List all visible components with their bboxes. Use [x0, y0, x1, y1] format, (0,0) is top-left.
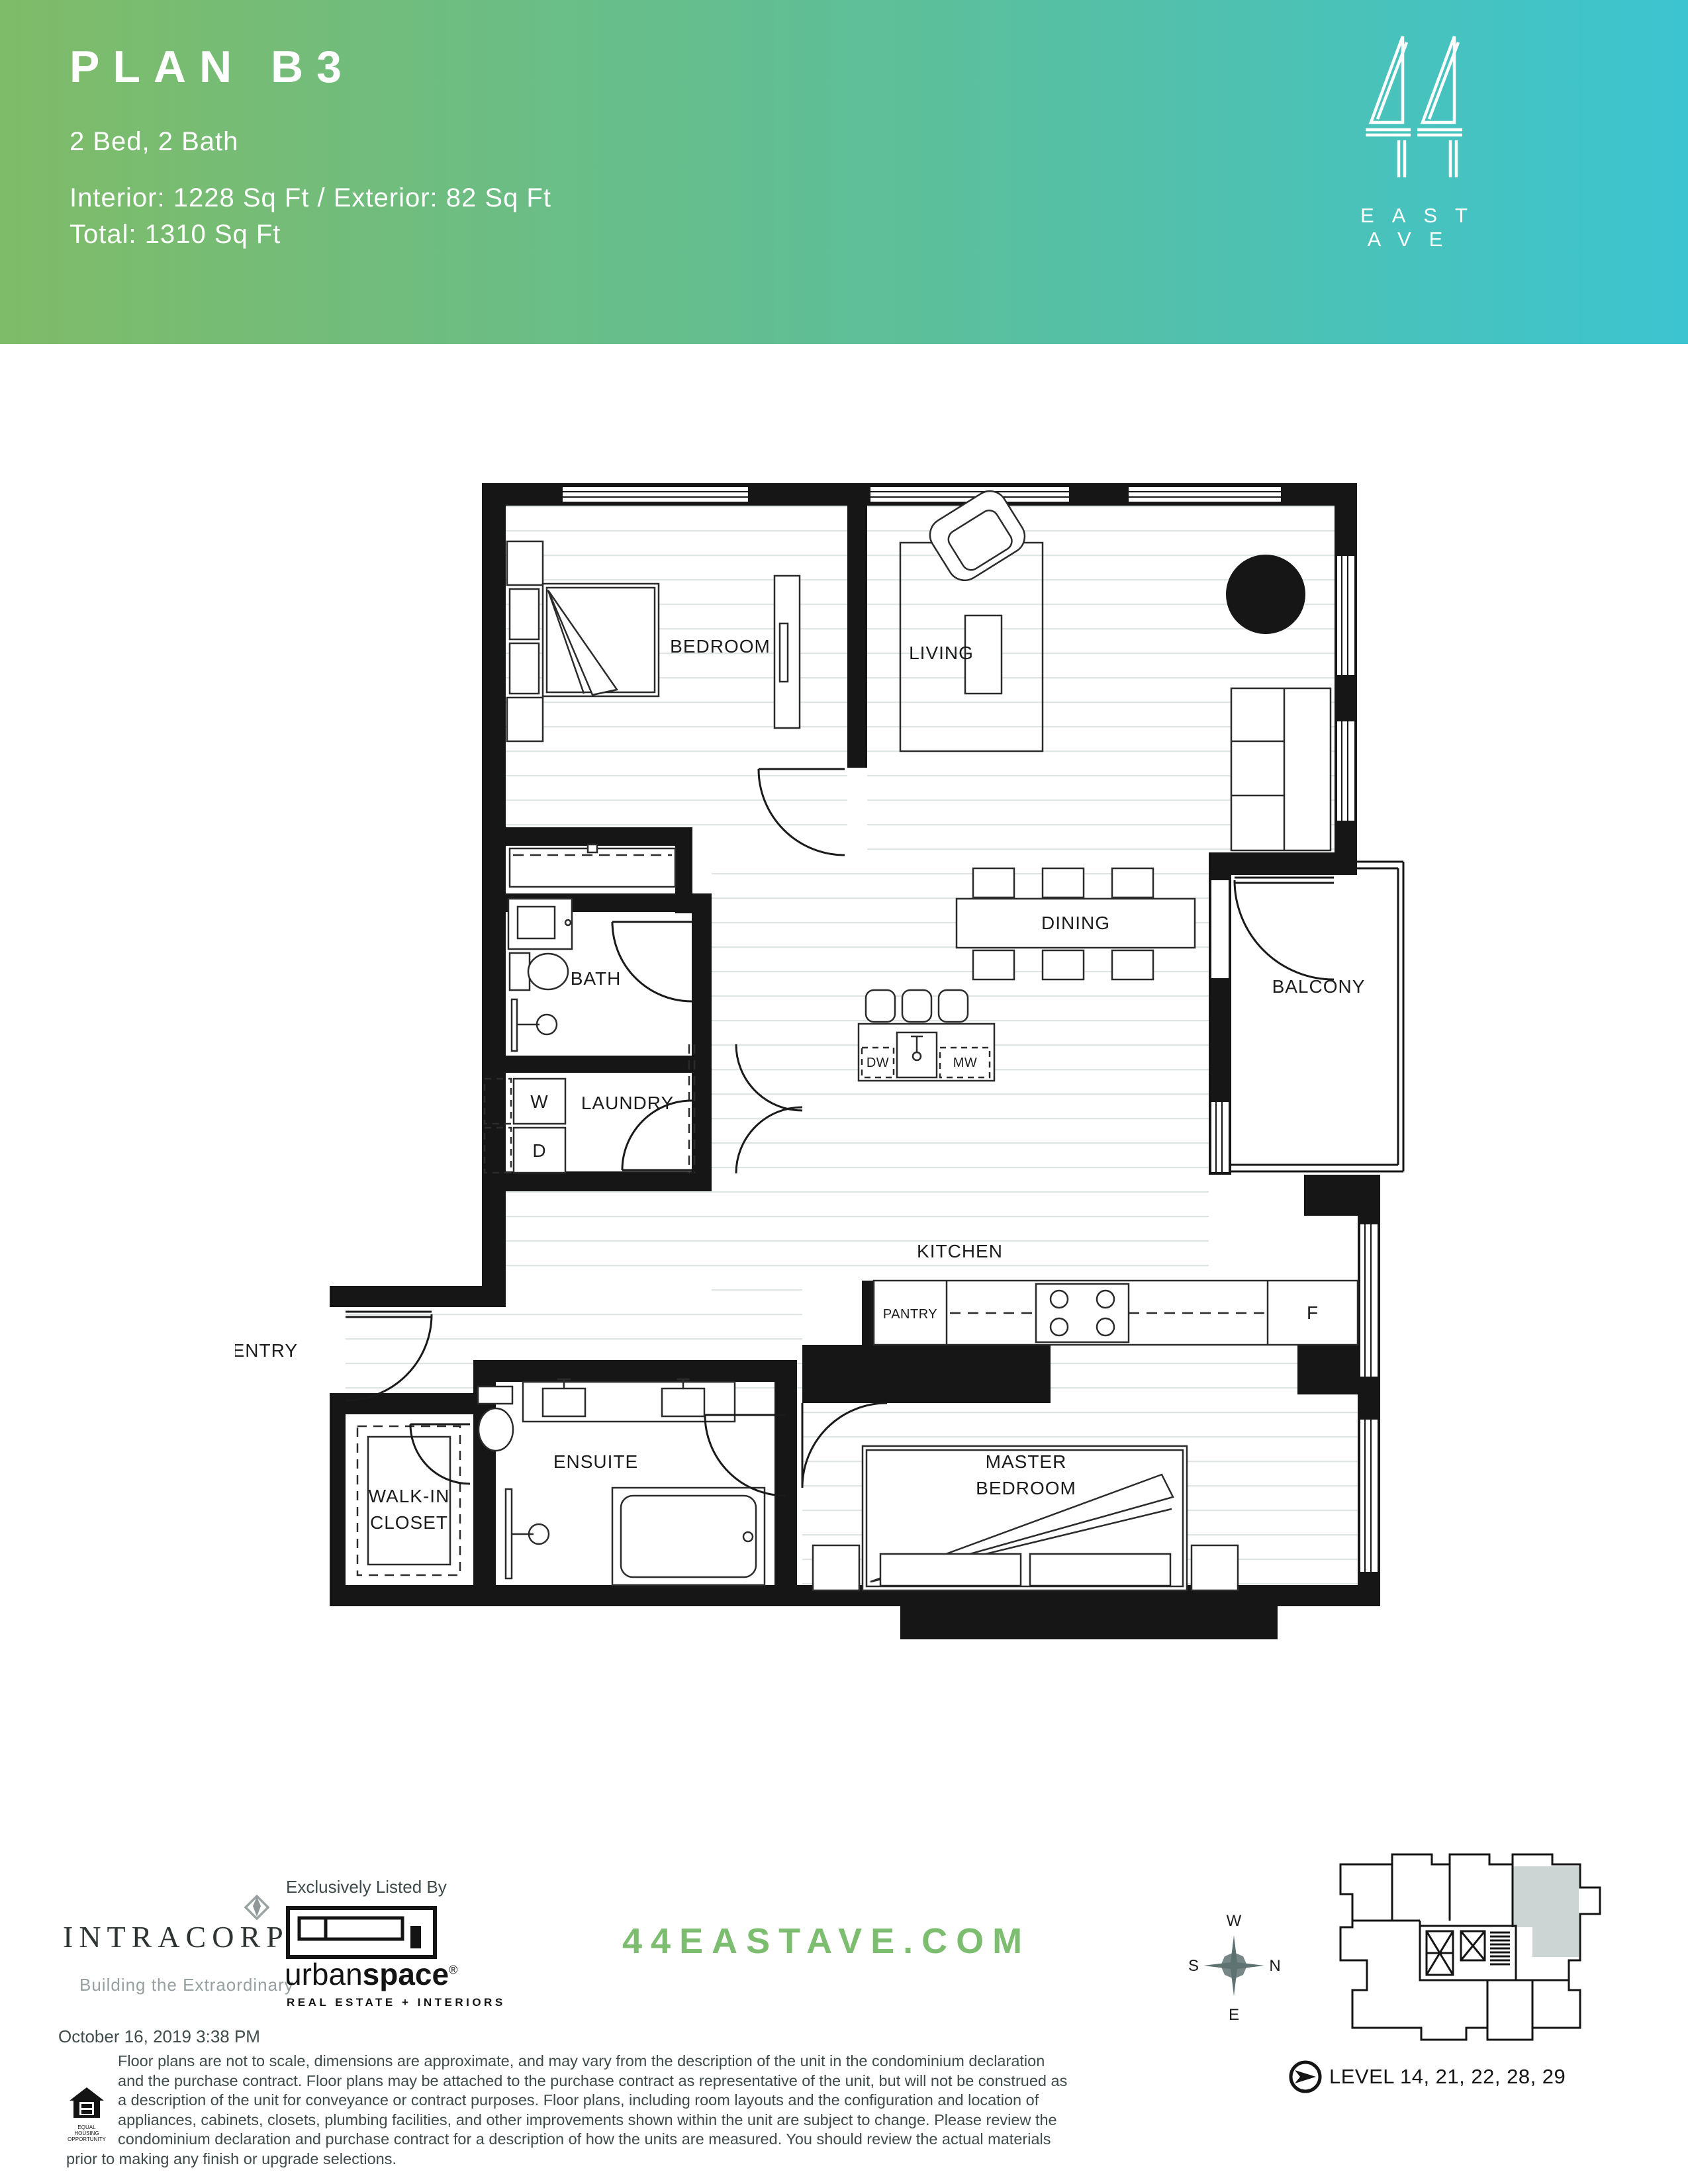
urbanspace-icon: [286, 1906, 437, 1962]
level-label: LEVEL 14, 21, 22, 28, 29: [1329, 2065, 1566, 2089]
brokerage-reg: ®: [449, 1964, 457, 1977]
brand-name: EAST AVE: [1307, 204, 1521, 251]
eho-line1: EQUAL HOUSING: [74, 2124, 99, 2136]
area-summary: Interior: 1228 Sq Ft / Exterior: 82 Sq F…: [70, 183, 551, 213]
print-date: October 16, 2019 3:38 PM: [58, 2026, 260, 2047]
label-laundry: LAUNDRY: [581, 1093, 674, 1113]
label-dishwasher: DW: [867, 1056, 889, 1070]
label-walkin-2: CLOSET: [370, 1512, 448, 1533]
eho-line2: OPPORTUNITY: [68, 2136, 106, 2142]
label-master-2: BEDROOM: [976, 1478, 1076, 1498]
label-bedroom: BEDROOM: [670, 636, 771, 657]
page-title: PLAN B3: [70, 41, 551, 93]
floor-plan-drawing: BEDROOM LIVING DINING BATH BALCONY LAUND…: [235, 457, 1417, 1734]
label-fridge: F: [1307, 1302, 1319, 1323]
total-area: Total: 1310 Sq Ft: [70, 220, 551, 250]
level-indicator: LEVEL 14, 21, 22, 28, 29: [1288, 2060, 1566, 2094]
balcony-railing: [1231, 862, 1403, 1171]
label-pantry: PANTRY: [883, 1307, 937, 1322]
label-ensuite: ENSUITE: [553, 1451, 638, 1472]
label-microwave: MW: [953, 1056, 978, 1070]
bed-bath-summary: 2 Bed, 2 Bath: [70, 127, 551, 157]
header-banner: PLAN B3 2 Bed, 2 Bath Interior: 1228 Sq …: [0, 0, 1688, 344]
brokerage-logo: urbanspace®: [285, 1956, 457, 1992]
compass-left: S: [1188, 1957, 1199, 1975]
brokerage-light: urban: [285, 1957, 363, 1991]
label-bath: BATH: [571, 968, 622, 989]
listed-by-label: Exclusively Listed By: [286, 1877, 447, 1897]
compass-bottom: E: [1229, 2006, 1239, 2023]
label-dining: DINING: [1041, 913, 1110, 933]
label-balcony: BALCONY: [1272, 976, 1366, 997]
logo-44-icon: [1364, 33, 1464, 187]
brand-logo: EAST AVE: [1307, 33, 1521, 251]
compass-right: N: [1269, 1957, 1280, 1975]
disclaimer-block: EQUAL HOUSING OPPORTUNITY Floor plans ar…: [66, 2052, 1072, 2169]
label-walkin-1: WALK-IN: [369, 1486, 450, 1506]
developer-tagline: Building the Extraordinary: [79, 1975, 294, 1995]
building-key-plan: [1314, 1848, 1622, 2060]
header-text-block: PLAN B3 2 Bed, 2 Bath Interior: 1228 Sq …: [70, 41, 551, 250]
column: [1226, 555, 1305, 634]
compass-top: W: [1227, 1912, 1242, 1930]
website-link[interactable]: 44EASTAVE.COM: [622, 1921, 1031, 1962]
level-arrow-icon: [1288, 2060, 1323, 2094]
label-dryer: D: [532, 1140, 546, 1161]
label-washer: W: [530, 1091, 548, 1112]
disclaimer-text: Floor plans are not to scale, dimensions…: [66, 2052, 1067, 2167]
brokerage-bold: space: [363, 1957, 449, 1991]
label-entry: ENTRY: [235, 1340, 298, 1361]
compass-rose: W S N E: [1184, 1909, 1284, 2026]
label-living: LIVING: [909, 643, 974, 663]
intracorp-diamond-icon: [244, 1894, 270, 1932]
brokerage-subtitle: REAL ESTATE + INTERIORS: [287, 1996, 506, 2009]
flyer-page: PLAN B3 2 Bed, 2 Bath Interior: 1228 Sq …: [0, 0, 1688, 2184]
floor-plan: BEDROOM LIVING DINING BATH BALCONY LAUND…: [235, 457, 1417, 1734]
label-master-1: MASTER: [986, 1451, 1067, 1472]
label-kitchen: KITCHEN: [917, 1241, 1003, 1261]
equal-housing-logo: EQUAL HOUSING OPPORTUNITY: [66, 2086, 107, 2142]
